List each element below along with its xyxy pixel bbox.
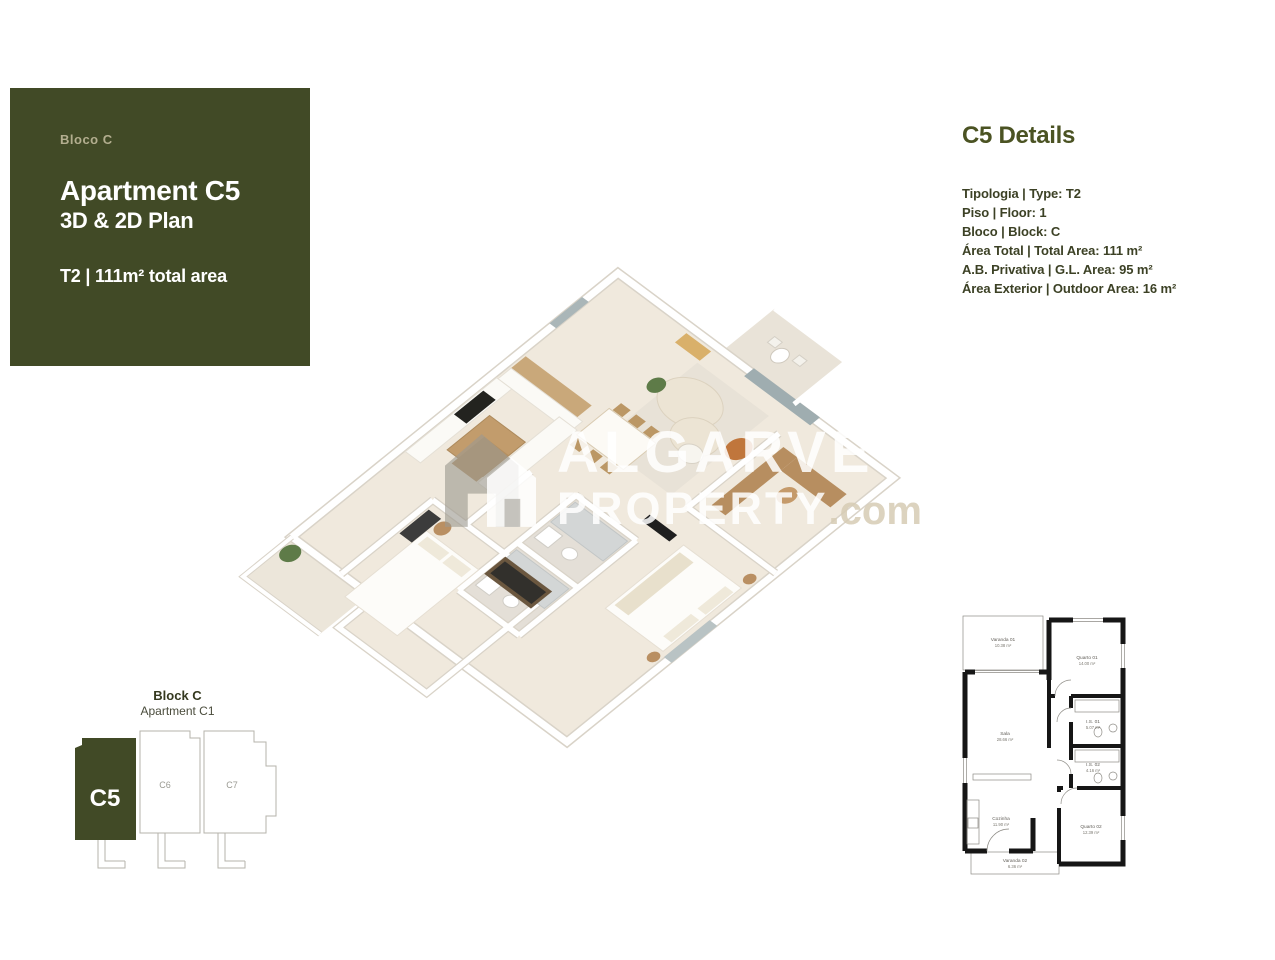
locator-title: Block C bbox=[70, 688, 285, 703]
plan2d-windows bbox=[964, 619, 1125, 841]
room-area-is1: 5.07 m² bbox=[1086, 725, 1101, 730]
plan2d-balconies bbox=[963, 616, 1059, 874]
floorplan-2d-svg: Varanda 01 10.38 m² Quarto 01 14.00 m² S… bbox=[953, 608, 1135, 876]
unit-c6-label: C6 bbox=[159, 780, 171, 790]
detail-row-gl: A.B. Privativa | G.L. Area: 95 m² bbox=[962, 260, 1262, 279]
unit-c5-shape: C5 bbox=[75, 738, 136, 840]
detail-row-block: Bloco | Block: C bbox=[962, 222, 1262, 241]
room-area-varanda1: 10.38 m² bbox=[995, 643, 1012, 648]
locator-subtitle: Apartment C1 bbox=[70, 704, 285, 718]
block-label: Bloco C bbox=[60, 132, 290, 147]
unit-c7-shape: C7 bbox=[204, 731, 276, 833]
floorplan-2d: Varanda 01 10.38 m² Quarto 01 14.00 m² S… bbox=[953, 608, 1135, 876]
detail-row-floor: Piso | Floor: 1 bbox=[962, 203, 1262, 222]
detail-row-type: Tipologia | Type: T2 bbox=[962, 184, 1262, 203]
room-area-quarto1: 14.00 m² bbox=[1079, 661, 1096, 666]
floorplan-3d-svg bbox=[230, 250, 920, 775]
plan-subtitle: 3D & 2D Plan bbox=[60, 208, 290, 234]
details-panel: C5 Details Tipologia | Type: T2 Piso | F… bbox=[962, 122, 1262, 298]
details-rows: Tipologia | Type: T2 Piso | Floor: 1 Blo… bbox=[962, 184, 1262, 298]
floorplan-3d-render bbox=[230, 250, 920, 775]
room-area-is2: 4.16 m² bbox=[1086, 768, 1101, 773]
unit-c6-shape: C6 bbox=[140, 731, 200, 833]
block-locator-diagram: C6 C7 C5 bbox=[70, 728, 285, 880]
room-area-varanda2: 6.36 m² bbox=[1008, 864, 1023, 869]
unit-c7-label: C7 bbox=[226, 780, 238, 790]
detail-row-total: Área Total | Total Area: 111 m² bbox=[962, 241, 1262, 260]
apartment-title: Apartment C5 bbox=[60, 177, 290, 205]
details-heading: C5 Details bbox=[962, 122, 1262, 150]
unit-c5-label: C5 bbox=[90, 785, 121, 812]
detail-row-outdoor: Área Exterior | Outdoor Area: 16 m² bbox=[962, 279, 1262, 298]
room-area-sala: 28.66 m² bbox=[997, 737, 1014, 742]
room-area-cozinha: 11.90 m² bbox=[993, 822, 1010, 827]
block-locator: Block C Apartment C1 C6 C7 C5 bbox=[70, 688, 285, 880]
room-area-quarto2: 12.39 m² bbox=[1083, 830, 1100, 835]
